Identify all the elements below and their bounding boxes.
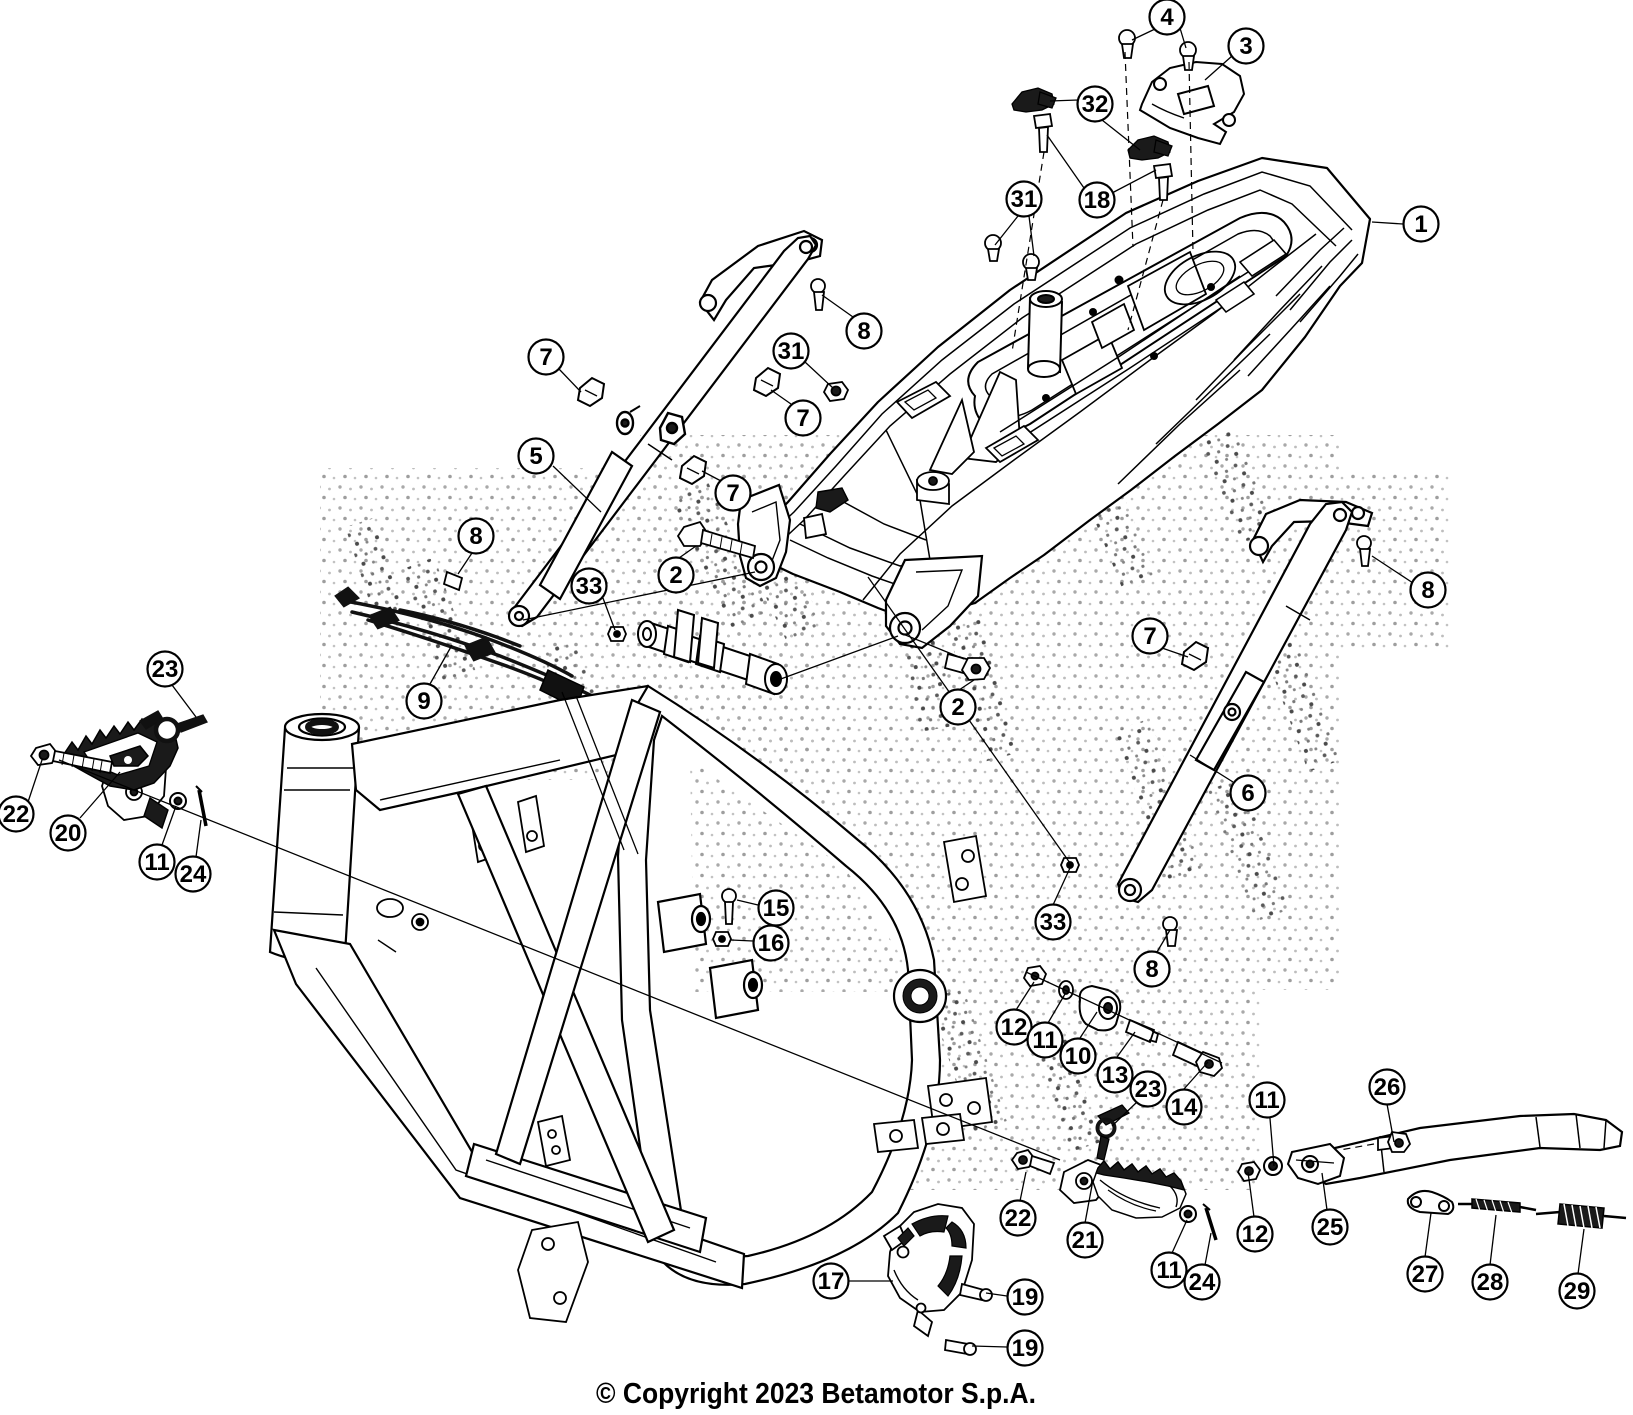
svg-text:11: 11 bbox=[144, 849, 169, 876]
svg-text:24: 24 bbox=[1189, 1269, 1216, 1296]
svg-text:28: 28 bbox=[1477, 1269, 1504, 1296]
svg-text:13: 13 bbox=[1102, 1062, 1129, 1089]
svg-text:32: 32 bbox=[1082, 91, 1109, 118]
svg-text:© Copyright 2023 Betamotor S.p: © Copyright 2023 Betamotor S.p.A. bbox=[596, 1378, 1036, 1410]
svg-text:26: 26 bbox=[1374, 1074, 1401, 1101]
svg-text:31: 31 bbox=[1011, 186, 1038, 213]
svg-text:22: 22 bbox=[1005, 1205, 1032, 1232]
svg-text:23: 23 bbox=[1135, 1076, 1162, 1103]
svg-text:21: 21 bbox=[1072, 1227, 1099, 1254]
svg-text:24: 24 bbox=[180, 861, 207, 888]
svg-text:18: 18 bbox=[1084, 187, 1111, 214]
svg-text:7: 7 bbox=[1143, 623, 1156, 650]
svg-text:20: 20 bbox=[55, 820, 82, 847]
svg-text:15: 15 bbox=[763, 895, 790, 922]
svg-text:8: 8 bbox=[1421, 577, 1434, 604]
svg-text:9: 9 bbox=[417, 688, 430, 715]
svg-text:29: 29 bbox=[1564, 1278, 1591, 1305]
svg-text:8: 8 bbox=[857, 318, 870, 345]
svg-text:19: 19 bbox=[1012, 1335, 1039, 1362]
svg-text:23: 23 bbox=[152, 656, 179, 683]
svg-text:14: 14 bbox=[1171, 1094, 1198, 1121]
svg-text:33: 33 bbox=[576, 573, 603, 600]
svg-text:25: 25 bbox=[1317, 1214, 1344, 1241]
svg-text:31: 31 bbox=[778, 338, 805, 365]
svg-text:4: 4 bbox=[1160, 4, 1174, 31]
svg-text:6: 6 bbox=[1241, 780, 1254, 807]
svg-text:7: 7 bbox=[726, 480, 739, 507]
svg-text:2: 2 bbox=[669, 562, 682, 589]
svg-text:11: 11 bbox=[1254, 1087, 1279, 1114]
svg-text:7: 7 bbox=[796, 405, 809, 432]
svg-text:7: 7 bbox=[539, 344, 552, 371]
svg-text:22: 22 bbox=[3, 801, 30, 828]
svg-text:11: 11 bbox=[1156, 1257, 1181, 1284]
svg-text:8: 8 bbox=[1145, 956, 1158, 983]
svg-text:3: 3 bbox=[1239, 33, 1252, 60]
svg-text:17: 17 bbox=[818, 1268, 845, 1295]
svg-text:33: 33 bbox=[1040, 909, 1067, 936]
svg-text:19: 19 bbox=[1012, 1284, 1039, 1311]
svg-text:27: 27 bbox=[1412, 1261, 1439, 1288]
svg-text:10: 10 bbox=[1065, 1043, 1092, 1070]
svg-text:11: 11 bbox=[1032, 1027, 1057, 1054]
svg-text:1: 1 bbox=[1414, 211, 1427, 238]
svg-text:2: 2 bbox=[951, 694, 964, 721]
svg-text:5: 5 bbox=[529, 443, 542, 470]
svg-text:8: 8 bbox=[469, 523, 482, 550]
svg-text:12: 12 bbox=[1242, 1221, 1269, 1248]
svg-text:16: 16 bbox=[758, 930, 785, 957]
svg-text:12: 12 bbox=[1001, 1014, 1028, 1041]
